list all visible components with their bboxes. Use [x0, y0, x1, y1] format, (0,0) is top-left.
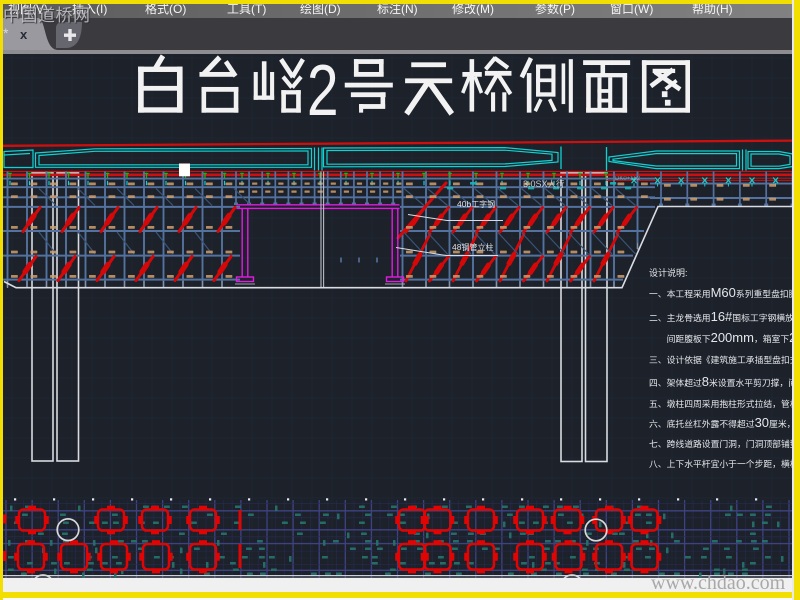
svg-text:x: x: [20, 27, 28, 42]
svg-text:设计说明:: 设计说明:: [649, 267, 688, 278]
svg-text:三、设计依据《建筑施工承插型盘扣式钢管支架安全技术规: 三、设计依据《建筑施工承插型盘扣式钢管支架安全技术规: [649, 354, 800, 365]
svg-text:*: *: [3, 25, 9, 41]
svg-text:2: 2: [307, 50, 339, 131]
svg-text:40b工字钢: 40b工字钢: [457, 199, 495, 209]
svg-text:DK0+162: DK0+162: [615, 176, 641, 182]
svg-text:48钢管立柱: 48钢管立柱: [452, 242, 493, 252]
svg-text:七、跨线道路设置门洞，门洞顶部铺垫木胶板，加放安全网．: 七、跨线道路设置门洞，门洞顶部铺垫木胶板，加放安全网．: [649, 438, 800, 449]
svg-text:3.0SX人行: 3.0SX人行: [523, 179, 565, 189]
